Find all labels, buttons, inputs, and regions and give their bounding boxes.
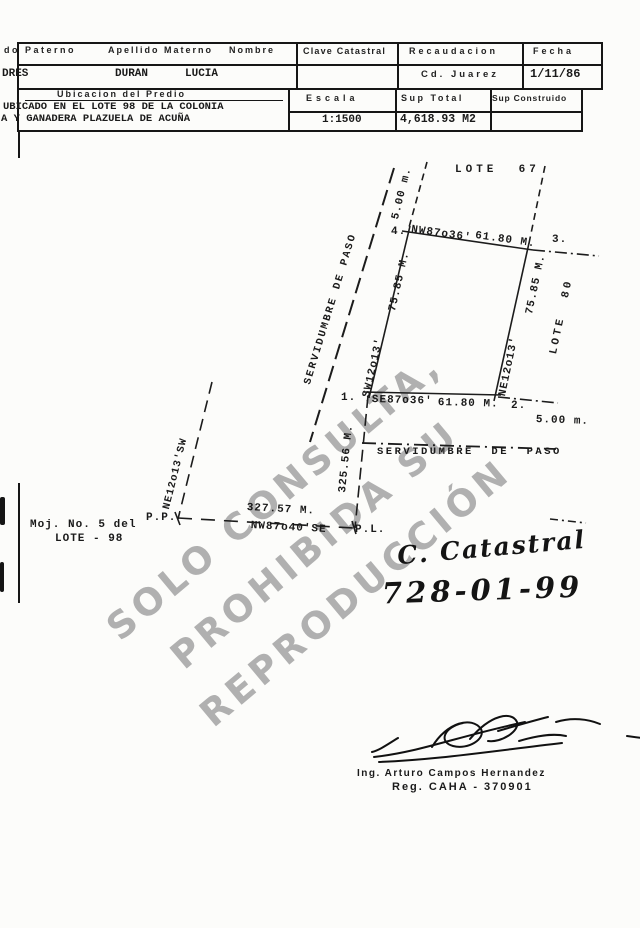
easement-horizontal-label: SERVIDUMBRE DE PASO xyxy=(377,447,562,459)
recaudacion-value: Cd. Juarez xyxy=(421,70,499,80)
fecha-value: 1/11/86 xyxy=(530,68,580,81)
scanned-cadastral-document: do Paterno Apellido Materno Nombre Clave… xyxy=(0,0,640,928)
ubicacion-value-line2: A Y GANADERA PLAZUELA DE ACUÑA xyxy=(1,114,190,126)
table-border xyxy=(296,42,298,90)
left-edge-length: 75.85 M. xyxy=(387,251,412,313)
sup-total-value: 4,618.93 M2 xyxy=(400,114,476,127)
left-margin-line xyxy=(18,483,20,603)
bottom-offset-label: 5.00 m. xyxy=(536,414,590,428)
sup-total-label: Sup Total xyxy=(401,94,464,104)
extension-right-of-corner2 xyxy=(498,397,558,403)
extension-above-corner3 xyxy=(528,166,545,248)
top-edge-length: 61.80 M. xyxy=(474,230,536,250)
escala-value: 1:1500 xyxy=(322,114,362,126)
sup-construido-label: Sup Construido xyxy=(492,94,567,103)
handwritten-clave-number: 728-01-99 xyxy=(382,571,584,610)
monument-note-line1: Moj. No. 5 del xyxy=(30,519,136,531)
table-border xyxy=(288,88,290,132)
apellido-paterno-label: do Paterno xyxy=(4,46,76,56)
adjacent-lot-67-label: LOTE 67 xyxy=(455,164,540,176)
bottom-edge-length: 61.80 M. xyxy=(438,397,499,411)
adjacent-lot-80-label: LOTE 80 xyxy=(548,278,576,356)
table-border xyxy=(601,42,603,90)
apellido-materno-label: Apellido Materno xyxy=(108,46,213,56)
point-pl-label: P.L. xyxy=(355,524,385,536)
table-border xyxy=(17,42,602,44)
corner-4-label: 4. xyxy=(391,226,406,238)
clave-catastral-label: Clave Catastral xyxy=(303,47,386,57)
point-pp-label: P.P. xyxy=(146,512,176,524)
table-border xyxy=(17,64,602,66)
fecha-label: Fecha xyxy=(533,47,574,57)
table-border xyxy=(395,88,397,132)
right-edge-length: 75.85 M. xyxy=(524,254,548,316)
table-border xyxy=(522,42,524,90)
corner-2-label: 2. xyxy=(511,400,526,412)
table-border xyxy=(17,130,582,132)
nombre-value: LUCIA xyxy=(185,68,218,80)
recaudacion-label: Recaudacion xyxy=(409,47,498,57)
bottom-edge-bearing: SE87o36' xyxy=(372,394,433,408)
scan-smudge xyxy=(0,562,4,592)
nombre-label: Nombre xyxy=(229,46,275,56)
escala-label: Escala xyxy=(306,94,359,104)
table-border xyxy=(397,42,399,90)
monument-note-line2: LOTE - 98 xyxy=(55,533,123,545)
easement-diagonal-label: SERVIDUMBRE DE PASO xyxy=(303,232,360,386)
table-border xyxy=(18,131,20,158)
top-offset-label: 5.00 m. xyxy=(390,166,415,221)
signature-scribble xyxy=(372,716,640,762)
west-line-bearing: NE12o13'SW xyxy=(162,437,191,511)
apellido-paterno-value: DRES xyxy=(2,68,28,80)
top-edge-bearing: NW87o36' xyxy=(410,224,472,244)
table-border xyxy=(581,88,583,132)
ubicacion-label: Ubicacion del Predio xyxy=(57,90,186,100)
surveyor-name: Ing. Arturo Campos Hernandez xyxy=(357,768,546,779)
surveyor-registration: Reg. CAHA - 370901 xyxy=(392,781,533,793)
scan-smudge xyxy=(0,497,5,525)
dash-fragment-right xyxy=(550,519,586,523)
corner-1-label: 1. xyxy=(341,392,356,404)
right-edge-bearing: NE12o13' xyxy=(497,336,521,398)
corner-3-label: 3. xyxy=(552,234,567,246)
apellido-materno-value: DURAN xyxy=(115,68,148,80)
ubicacion-value-line1: UBICADO EN EL LOTE 98 DE LA COLONIA xyxy=(3,102,224,114)
